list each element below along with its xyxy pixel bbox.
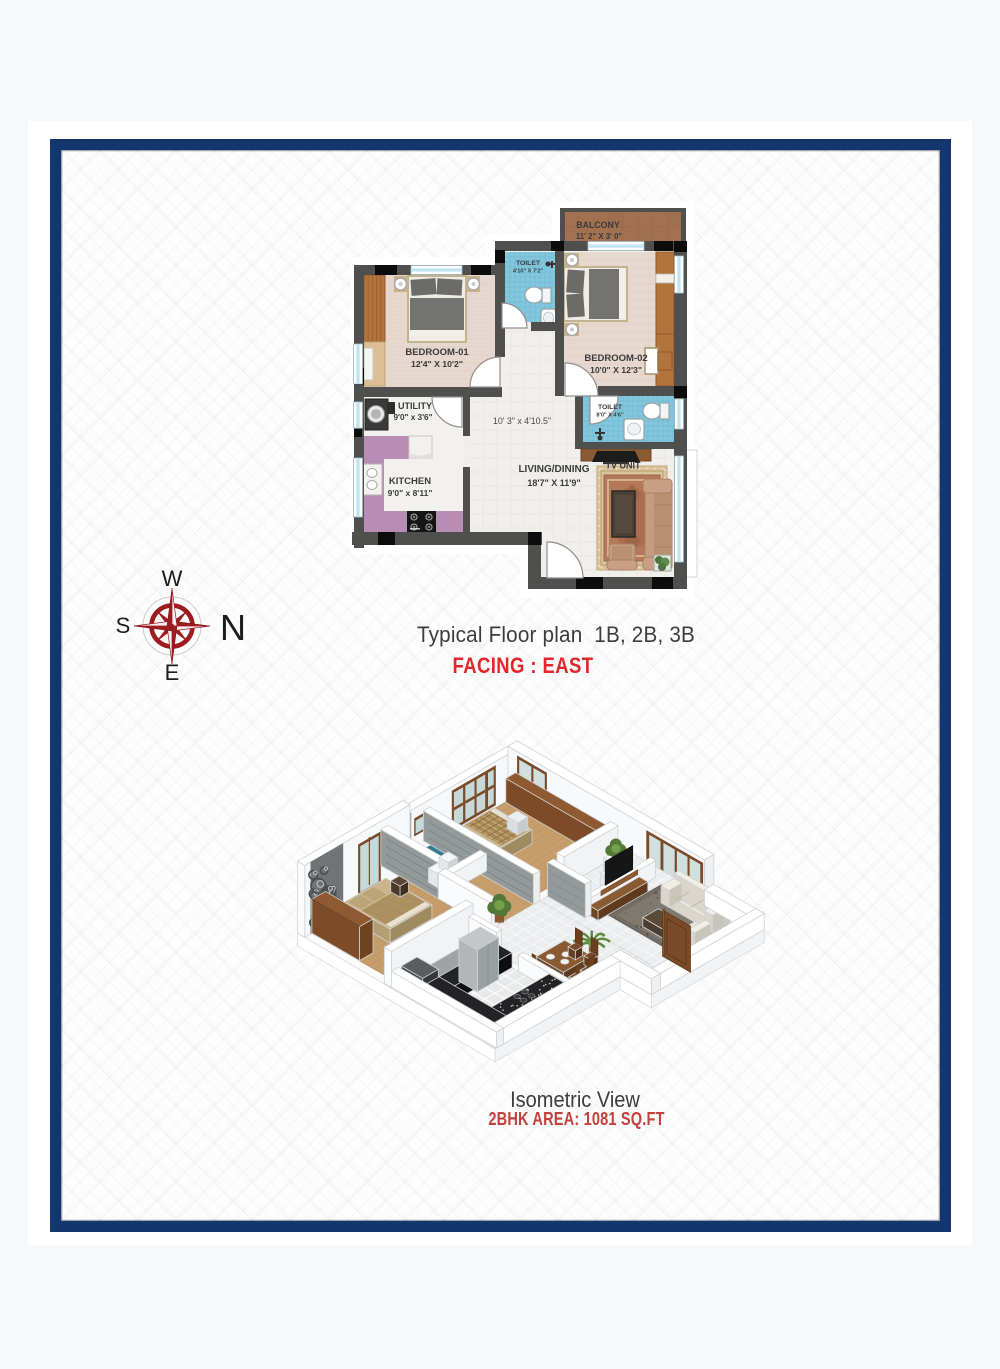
svg-text:TV UNIT: TV UNIT — [606, 461, 642, 471]
svg-text:TOILET: TOILET — [598, 404, 623, 411]
svg-text:11' 2" X 3' 0": 11' 2" X 3' 0" — [576, 232, 623, 241]
svg-text:9'0" x 3'6": 9'0" x 3'6" — [394, 413, 433, 422]
svg-text:LIVING/DINING: LIVING/DINING — [518, 464, 589, 475]
svg-text:4'10" X 7'2": 4'10" X 7'2" — [513, 269, 544, 275]
svg-text:TOILET: TOILET — [516, 260, 541, 267]
svg-text:12'4" X 10'2": 12'4" X 10'2" — [411, 359, 463, 369]
svg-text:KITCHEN: KITCHEN — [389, 476, 431, 487]
svg-text:9'0" x 8'11": 9'0" x 8'11" — [388, 488, 433, 498]
svg-text:UTILITY: UTILITY — [398, 401, 432, 411]
svg-text:BALCONY: BALCONY — [576, 220, 620, 230]
svg-text:10'0" X 12'3": 10'0" X 12'3" — [590, 365, 642, 375]
svg-text:BEDROOM-02: BEDROOM-02 — [584, 353, 647, 364]
svg-text:8'0" X 4'6": 8'0" X 4'6" — [596, 413, 624, 419]
svg-text:10' 3" x 4'10.5": 10' 3" x 4'10.5" — [493, 416, 551, 426]
svg-text:18'7" X 11'9": 18'7" X 11'9" — [527, 478, 580, 488]
svg-text:BEDROOM-01: BEDROOM-01 — [405, 347, 469, 358]
